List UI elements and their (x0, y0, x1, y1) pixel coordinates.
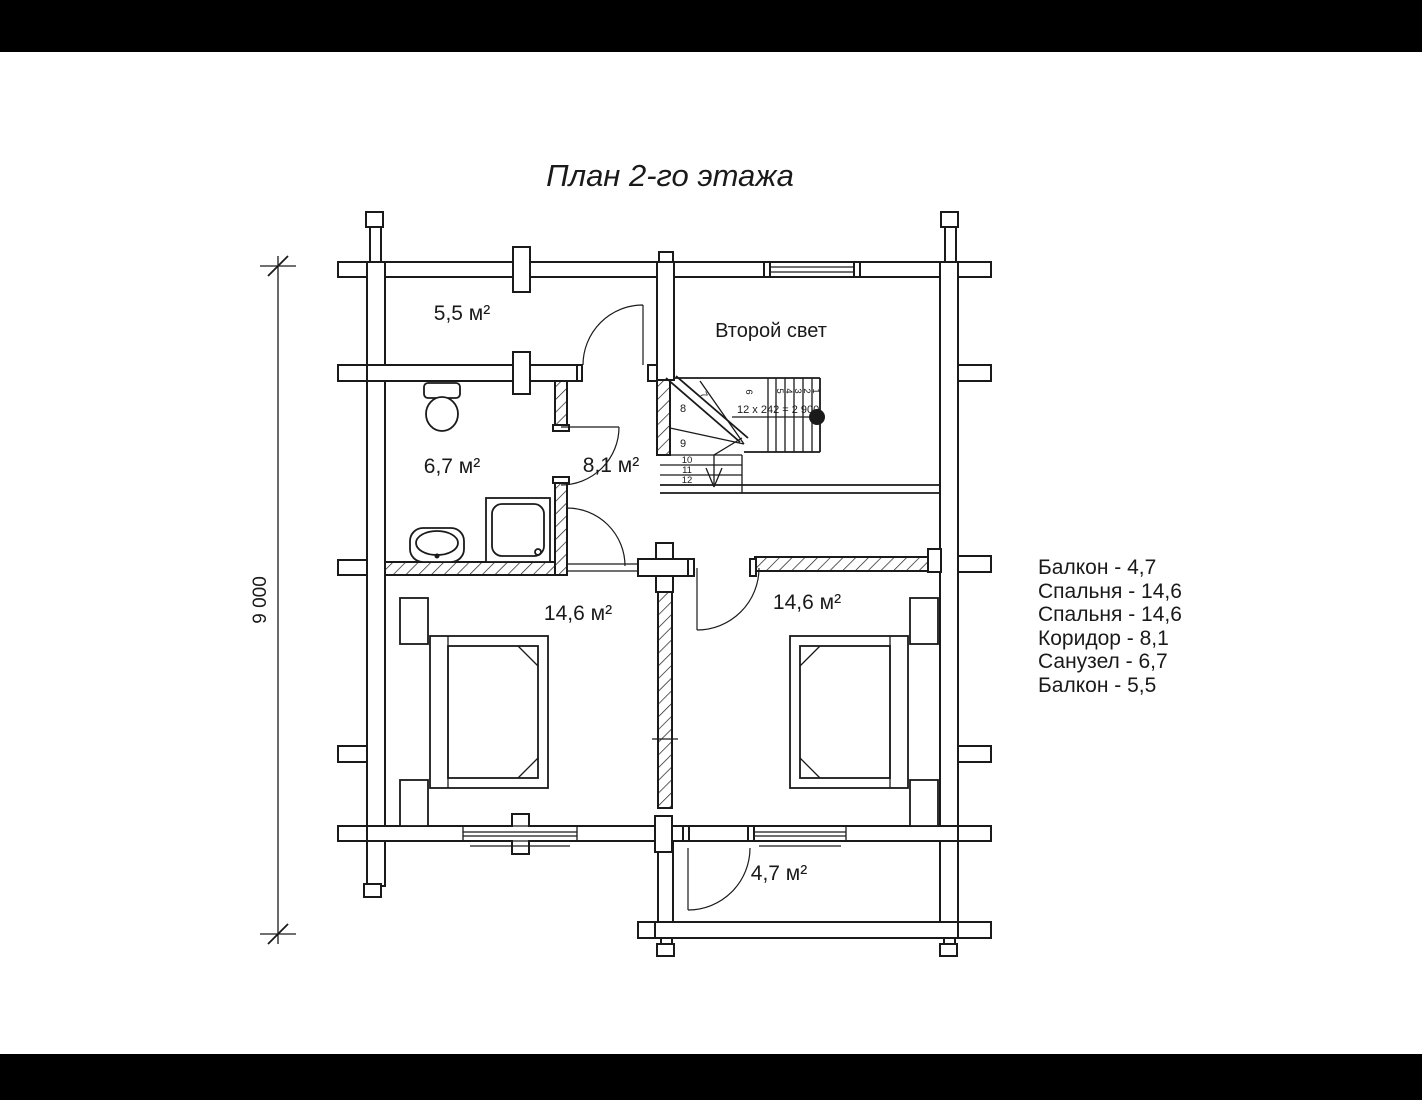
stair-down-arrow (706, 438, 742, 487)
label-second-light: Второй свет (715, 320, 827, 342)
stair-step-number: 7 (697, 390, 709, 399)
door-balcony-bottom (688, 848, 750, 910)
label-balcony-bottom: 4,7 м² (751, 862, 807, 885)
stair-step-number: 5 (774, 388, 785, 393)
label-bathroom: 6,7 м² (424, 455, 480, 478)
toilet-bowl (426, 397, 458, 431)
staircase: 12 x 242 = 2 900 1 2 3 4 5 6 7 8 9 10 11… (660, 376, 940, 493)
stair-step-number: 12 (682, 475, 693, 486)
floor-plan-page: План 2-го этажа Балкон - 4,7 Спальня - 1… (0, 0, 1422, 1100)
label-bedroom-right: 14,6 м² (773, 591, 841, 614)
stair-step-number: 6 (743, 389, 754, 394)
label-bedroom-left: 14,6 м² (544, 602, 612, 625)
nightstand (910, 598, 938, 644)
nightstand (400, 780, 428, 826)
nightstand (910, 780, 938, 826)
nightstand (400, 598, 428, 644)
stair-step-number: 9 (680, 438, 686, 450)
sink-tap (435, 554, 440, 559)
stair-step-number: 8 (680, 403, 686, 415)
dimension-line: 9 000 (250, 256, 296, 944)
label-corridor: 8,1 м² (583, 454, 639, 477)
toilet-tank (424, 383, 460, 398)
label-balcony-top: 5,5 м² (434, 302, 490, 325)
dimension-value: 9 000 (250, 576, 271, 624)
door-balcony-top (583, 305, 643, 365)
floor-plan-drawing: 12 x 242 = 2 900 1 2 3 4 5 6 7 8 9 10 11… (0, 0, 1422, 1100)
stair-formula: 12 x 242 = 2 900 (737, 404, 819, 416)
door-bedroom-left (567, 508, 625, 566)
door-bedroom-right (697, 568, 759, 630)
